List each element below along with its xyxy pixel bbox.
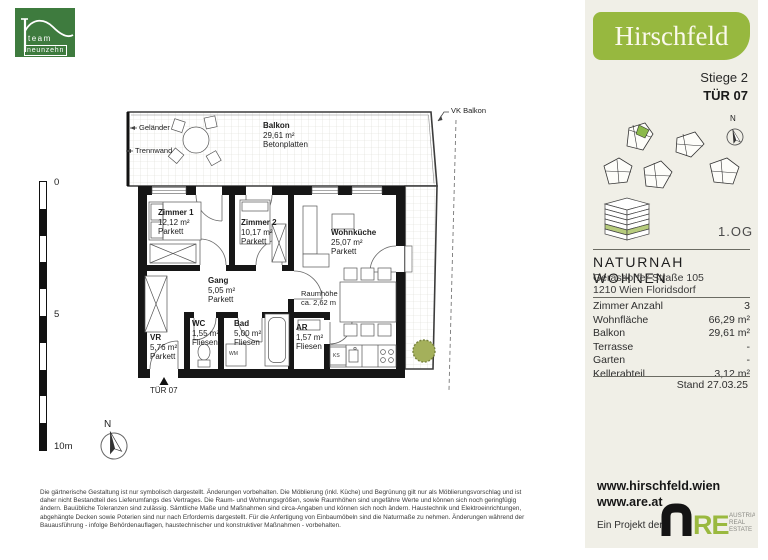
table-row: Balkon29,61 m²: [593, 327, 750, 341]
vk-balkon-label: VK Balkon: [451, 106, 486, 115]
are-logo-a-icon: [666, 508, 687, 536]
svg-text:REAL: REAL: [729, 519, 746, 526]
stand-date: Stand 27.03.25: [677, 379, 748, 391]
project-note: Ein Projekt der: [597, 520, 663, 531]
table-row: Terrasse-: [593, 341, 750, 355]
svg-text:ESTATE: ESTATE: [729, 526, 752, 533]
plan-compass-icon: [98, 428, 130, 462]
stiege-label: Stiege 2: [700, 70, 748, 85]
bush-icon: [413, 340, 435, 362]
brand-name: Hirschfeld: [615, 21, 729, 52]
entry-marker-icon: [160, 377, 169, 385]
divider: [593, 297, 750, 298]
table-row: Wohnfläche66,29 m²: [593, 314, 750, 328]
divider: [593, 249, 750, 250]
table-row: Zimmer Anzahl3: [593, 300, 750, 314]
are-link[interactable]: www.are.at: [597, 495, 663, 509]
plan-tuer-label: TÜR 07: [150, 386, 178, 396]
trennwand-label: Trennwand: [135, 146, 172, 155]
disclaimer-text: Die gärtnerische Gestaltung ist nur symb…: [40, 489, 586, 530]
divider: [593, 376, 750, 377]
room-zimmer1-label: Zimmer 112,12 m²Parkett: [158, 208, 194, 237]
plan-north-label: N: [104, 419, 111, 430]
room-wohnkueche-label: Wohnküche25,07 m²Parkett: [331, 228, 376, 257]
vk-dashed-line: [449, 120, 456, 390]
gelaender-label: Geländer: [139, 123, 170, 132]
ks-label: KS: [333, 353, 340, 359]
balcony-label: Balkon 29,61 m² Betonplatten: [263, 121, 308, 150]
floor-label: 1.OG: [718, 224, 753, 239]
unit-data-table: Zimmer Anzahl3 Wohnfläche66,29 m² Balkon…: [593, 300, 750, 381]
room-bad-label: Bad5,00 m²Fliesen: [234, 319, 261, 348]
room-vr-label: VR5,76 m²Parkett: [150, 333, 177, 362]
raumhoehe-label: Raumhöheca. 2,62 m: [301, 289, 338, 307]
room-ar-label: AR1,57 m²Fliesen: [296, 323, 323, 352]
table-row: Garten-: [593, 354, 750, 368]
are-logo: RE AUSTRIAN REAL ESTATE: [659, 503, 755, 539]
siteplan-compass-icon: [725, 127, 745, 147]
siteplan-north-label: N: [730, 114, 736, 123]
tuer-label: TÜR 07: [703, 88, 748, 103]
room-gang-label: Gang5,05 m²Parkett: [208, 276, 235, 305]
floorplan-sheet: team neunzehn 0 5 10m: [0, 0, 768, 560]
wm-label: WM: [229, 351, 238, 357]
hirschfeld-header: Hirschfeld: [593, 12, 750, 60]
info-sidebar: Hirschfeld Stiege 2 TÜR 07: [585, 0, 758, 548]
isometric-building: [605, 198, 649, 240]
room-wc-label: WC1,55 m²Fliesen: [192, 319, 219, 348]
are-logo-re: RE: [693, 510, 729, 539]
svg-text:AUSTRIAN: AUSTRIAN: [729, 512, 755, 519]
hirschfeld-link[interactable]: www.hirschfeld.wien: [597, 479, 720, 493]
room-zimmer2-label: Zimmer 210,17 m²Parkett: [241, 218, 277, 247]
address-line2: 1210 Wien Floridsdorf: [593, 284, 696, 296]
address-line1: Gerasdorfer Straße 105: [593, 272, 704, 284]
site-plan: N 1.OG: [587, 104, 755, 250]
site-building-4: [644, 161, 672, 188]
